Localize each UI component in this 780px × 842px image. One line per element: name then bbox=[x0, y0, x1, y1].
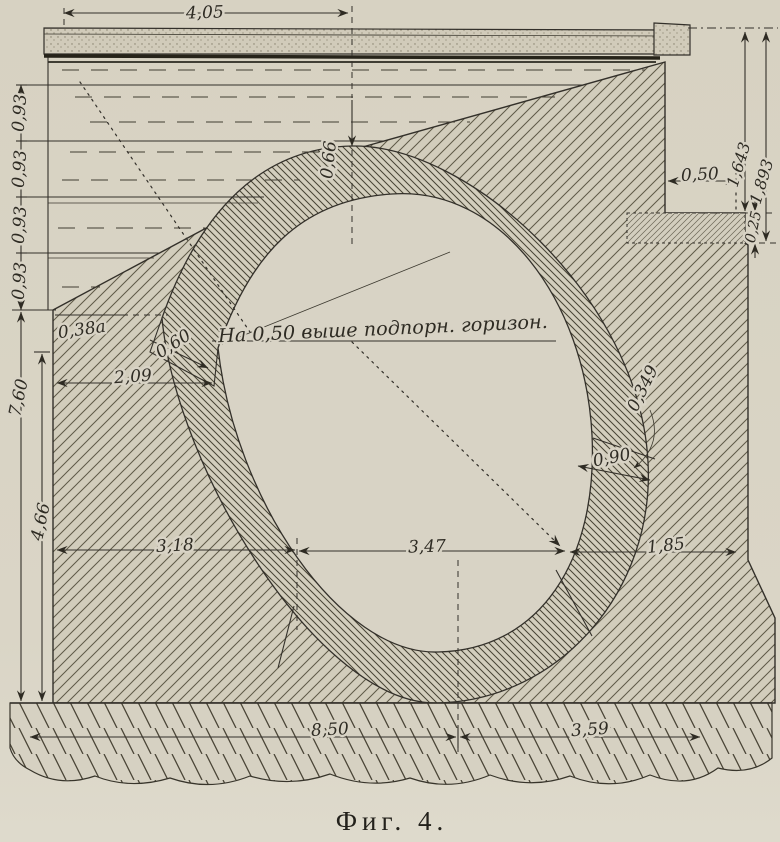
dam-cross-section-svg: 4,05 0,93 0,93 0,93 0,93 7,60 4,66 0,66 … bbox=[0, 0, 780, 842]
slab-end-block bbox=[654, 23, 690, 55]
dim-span-left: 3,18 bbox=[156, 535, 195, 557]
figure-4-drawing: 4,05 0,93 0,93 0,93 0,93 7,60 4,66 0,66 … bbox=[0, 0, 780, 842]
dim-span-right: 1,85 bbox=[646, 534, 686, 558]
right-ledge-block bbox=[627, 213, 745, 243]
dim-left-seg-1: 0,93 bbox=[9, 93, 32, 132]
foundation bbox=[10, 703, 772, 785]
dim-left-seg-3: 0,93 bbox=[9, 205, 32, 244]
dim-span-mid: 3,47 bbox=[408, 536, 447, 557]
dim-top-span: 4,05 bbox=[185, 2, 225, 23]
dim-crown-thickness: 0,66 bbox=[317, 140, 341, 180]
dim-base-right: 3,59 bbox=[570, 719, 609, 742]
dim-base-main: 8,50 bbox=[311, 719, 350, 741]
figure-caption: Фиг. 4. bbox=[336, 806, 449, 836]
dim-left-seg-4: 0,93 bbox=[9, 261, 32, 300]
dim-springer-offset: 2,09 bbox=[112, 366, 152, 389]
dim-ledge-width: 0,50 bbox=[681, 164, 720, 186]
dim-left-seg-2: 0,93 bbox=[9, 149, 32, 188]
